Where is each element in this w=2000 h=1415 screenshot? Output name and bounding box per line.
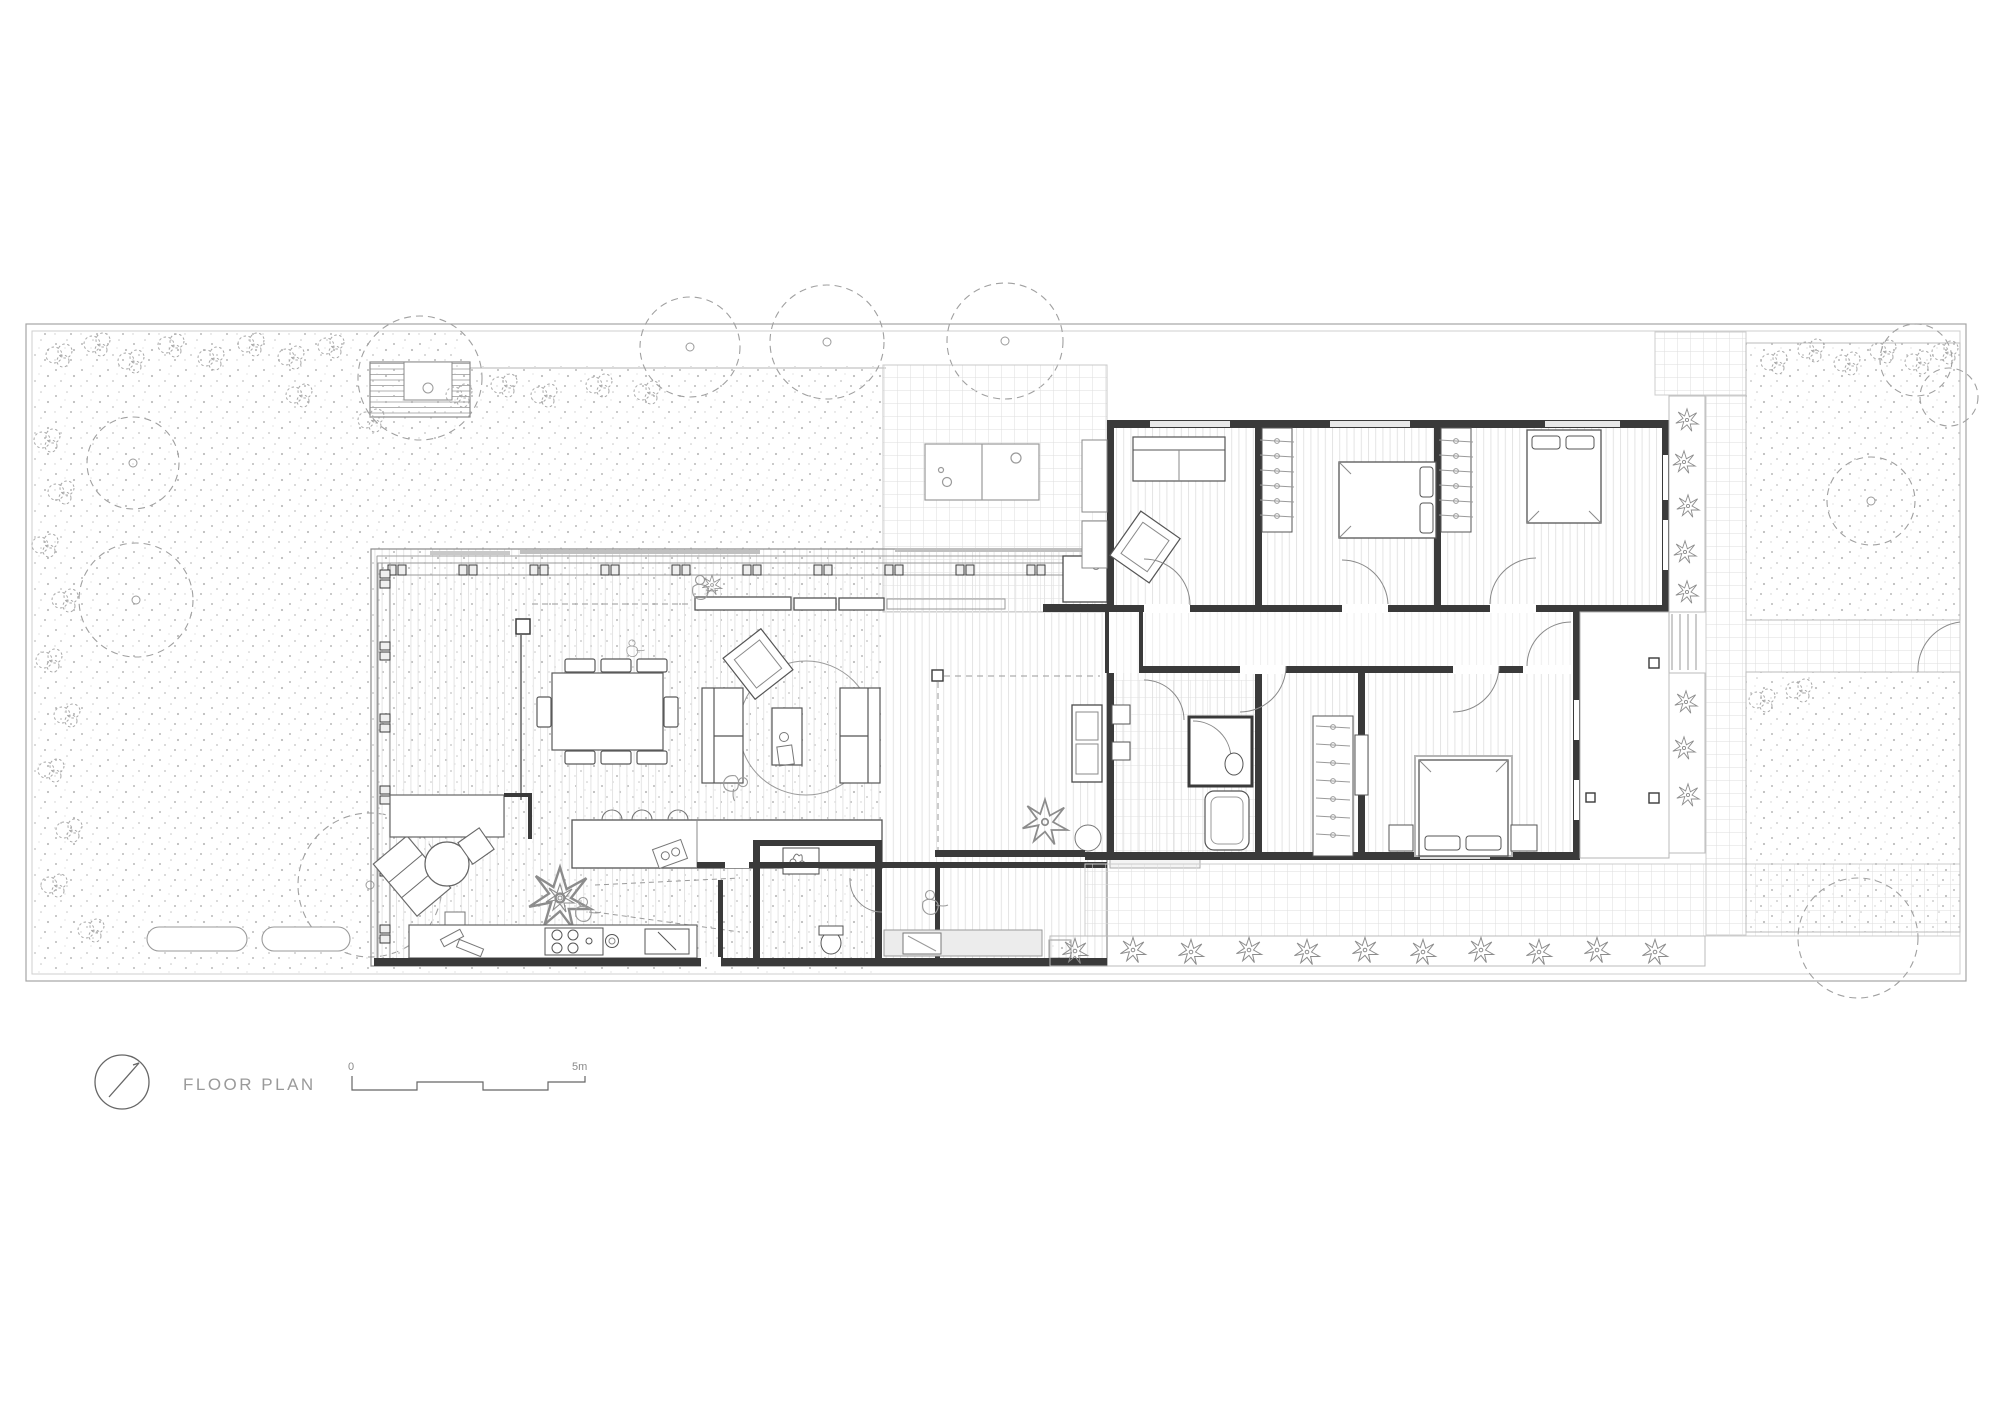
drawing-title: FLOOR PLAN: [183, 1075, 316, 1094]
living-pavilion: [371, 548, 1200, 967]
scale-end-label: 5m: [572, 1061, 587, 1073]
east-bed-strip: [1669, 396, 1705, 853]
coffee-table: [772, 708, 802, 765]
post: [1586, 793, 1595, 802]
basin: [1112, 705, 1130, 724]
south-counter: [409, 925, 697, 958]
east-verandah: [1580, 612, 1696, 858]
dining-table: [537, 659, 678, 764]
post: [1649, 793, 1659, 803]
garden-deck-steps: [370, 362, 470, 417]
gate-path: [1746, 620, 1960, 672]
window-box: [1082, 521, 1107, 568]
entry-steps: [1672, 614, 1696, 670]
bathroom: [1112, 680, 1255, 852]
basin: [1112, 742, 1130, 760]
window-seat: [390, 795, 504, 837]
scale-start-label: 0: [348, 1061, 354, 1073]
door-mat: [1049, 940, 1071, 958]
post: [1649, 658, 1659, 668]
bedside-table: [1389, 825, 1413, 851]
toilet: [1225, 753, 1243, 775]
scale-bar: 0 5m: [348, 1061, 587, 1090]
window-box: [1082, 440, 1107, 512]
post: [932, 670, 943, 681]
outdoor-table: [925, 444, 1039, 500]
south-wall: [374, 958, 1107, 966]
bathtub: [1205, 791, 1249, 850]
front-path: [1706, 396, 1746, 935]
pouf: [1075, 825, 1101, 851]
garden-bed-lower: [1746, 672, 1960, 932]
title-block: FLOOR PLAN 0 5m: [95, 1055, 587, 1109]
mirror: [1355, 735, 1368, 795]
garden-bed-upper: [1746, 343, 1960, 620]
bedside-table: [1511, 825, 1537, 851]
stool: [445, 912, 465, 926]
south-bed: [1050, 936, 1705, 966]
floor-plan-drawing: FLOOR PLAN 0 5m: [0, 0, 2000, 1415]
north-arrow-icon: [95, 1055, 149, 1109]
floor-plan-sheet: FLOOR PLAN 0 5m: [0, 0, 2000, 1415]
bedroom-wing: [1082, 420, 1696, 860]
shower-room: [1189, 717, 1252, 786]
